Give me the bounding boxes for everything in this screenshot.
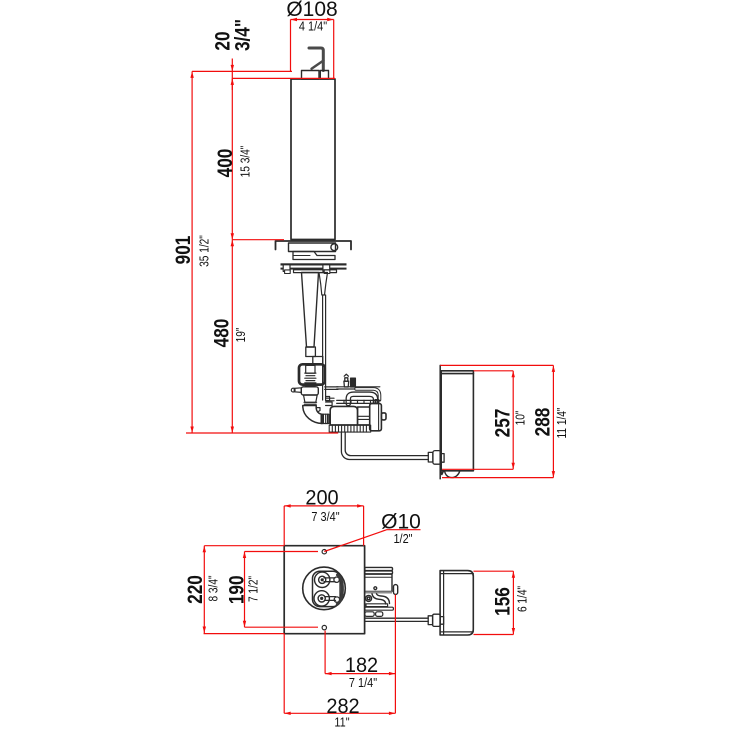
svg-text:200: 200 xyxy=(305,486,338,510)
svg-text:11 1/4": 11 1/4" xyxy=(555,408,569,439)
svg-text:3/4": 3/4" xyxy=(232,19,255,51)
svg-text:1/2": 1/2" xyxy=(393,531,412,546)
svg-text:182: 182 xyxy=(345,654,378,678)
svg-text:Ø10: Ø10 xyxy=(381,511,421,534)
svg-text:4 1/4": 4 1/4" xyxy=(299,19,327,34)
svg-text:7 1/4": 7 1/4" xyxy=(349,675,377,690)
svg-text:400: 400 xyxy=(215,149,238,178)
svg-text:480: 480 xyxy=(211,319,234,348)
svg-text:10": 10" xyxy=(514,411,528,426)
svg-text:7 1/2": 7 1/2" xyxy=(247,576,261,602)
svg-text:7 3/4": 7 3/4" xyxy=(311,509,339,524)
svg-text:220: 220 xyxy=(185,575,208,604)
svg-text:288: 288 xyxy=(532,407,555,436)
svg-text:257: 257 xyxy=(492,409,515,438)
svg-text:156: 156 xyxy=(492,587,515,616)
svg-text:15 3/4": 15 3/4" xyxy=(239,146,253,178)
svg-text:8 3/4": 8 3/4" xyxy=(207,575,221,601)
svg-text:35 1/2": 35 1/2" xyxy=(198,235,212,267)
svg-text:11": 11" xyxy=(334,715,349,730)
svg-text:6 1/4": 6 1/4" xyxy=(516,586,530,612)
svg-text:19": 19" xyxy=(234,328,248,343)
svg-text:901: 901 xyxy=(173,235,196,264)
